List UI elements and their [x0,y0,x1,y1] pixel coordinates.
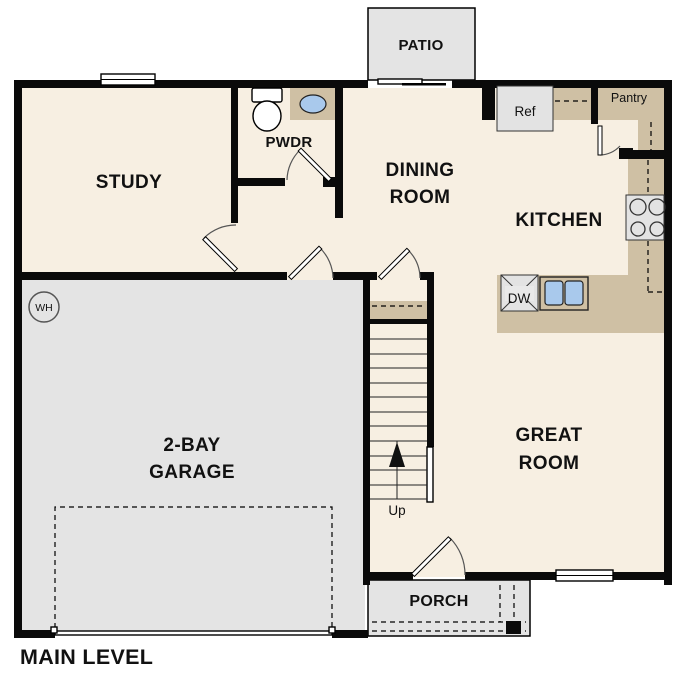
powder-sink-icon [300,95,326,113]
porch-label: PORCH [409,593,468,610]
wall-garage-bottom-left [14,630,55,638]
stair-railing [427,447,433,502]
water-heater-icon: WH [29,292,59,322]
study-label: STUDY [96,172,162,193]
floor-plan: WH STUDY PWDR DINING ROOM KITCHEN Pantry… [0,0,687,687]
wall-bottom-foyer [363,572,413,580]
garage-label-line2: GARAGE [149,462,235,483]
closet-shelf [370,301,427,320]
kitchen-counter-top [553,84,591,120]
wall-study-garage [14,272,287,280]
garage-door [55,631,332,635]
wall-garage-stairs [363,272,370,585]
wall-dining-west [335,88,343,218]
wall-study-right [231,88,238,223]
refrigerator-label: Ref [514,104,535,119]
pantry-label: Pantry [611,91,648,105]
dining-label-line2: ROOM [390,187,451,208]
wall-powder-bottom [238,178,285,186]
dining-label-line1: DINING [386,160,455,181]
plan-title: MAIN LEVEL [20,645,153,669]
wall-bottom-greatroom-left [465,572,556,580]
dishwasher-label: DW [508,291,531,306]
kitchen-counter-right-lower [628,240,664,275]
greatroom-label-line2: ROOM [519,453,580,474]
wall-hall-bottom [333,272,377,280]
greatroom-window [556,570,613,581]
stairs-up-label: Up [388,503,405,518]
porch-post [506,621,521,634]
patio-label: PATIO [398,37,443,54]
wall-bottom-greatroom-right [613,572,672,580]
wall-pantry-west [591,80,598,124]
kitchen-label: KITCHEN [515,210,602,231]
garage-door-stop-left [51,627,57,633]
wall-left [14,80,22,638]
water-heater-label: WH [35,302,53,314]
kitchen-counter-right-upper [628,159,664,195]
greatroom-label-line1: GREAT [515,425,582,446]
wall-garage-bottom-right [332,630,368,638]
garage-floor [22,280,365,632]
kitchen-sink-icon [540,277,588,310]
stove-icon [626,195,665,240]
wall-right [664,80,672,585]
wall-top-left [14,80,368,88]
floor-plan-canvas: WH STUDY PWDR DINING ROOM KITCHEN Pantry… [0,0,687,687]
wall-pantry-bottom [627,150,664,159]
closet-shelf-edge [370,319,427,324]
wall-stairs-right [427,272,434,447]
study-window [101,74,155,85]
toilet-icon [252,88,282,131]
powder-label: PWDR [265,134,312,151]
garage-door-stop-right [329,627,335,633]
garage-label-line1: 2-BAY [163,435,220,456]
wall-kitchen-stub [482,80,495,120]
